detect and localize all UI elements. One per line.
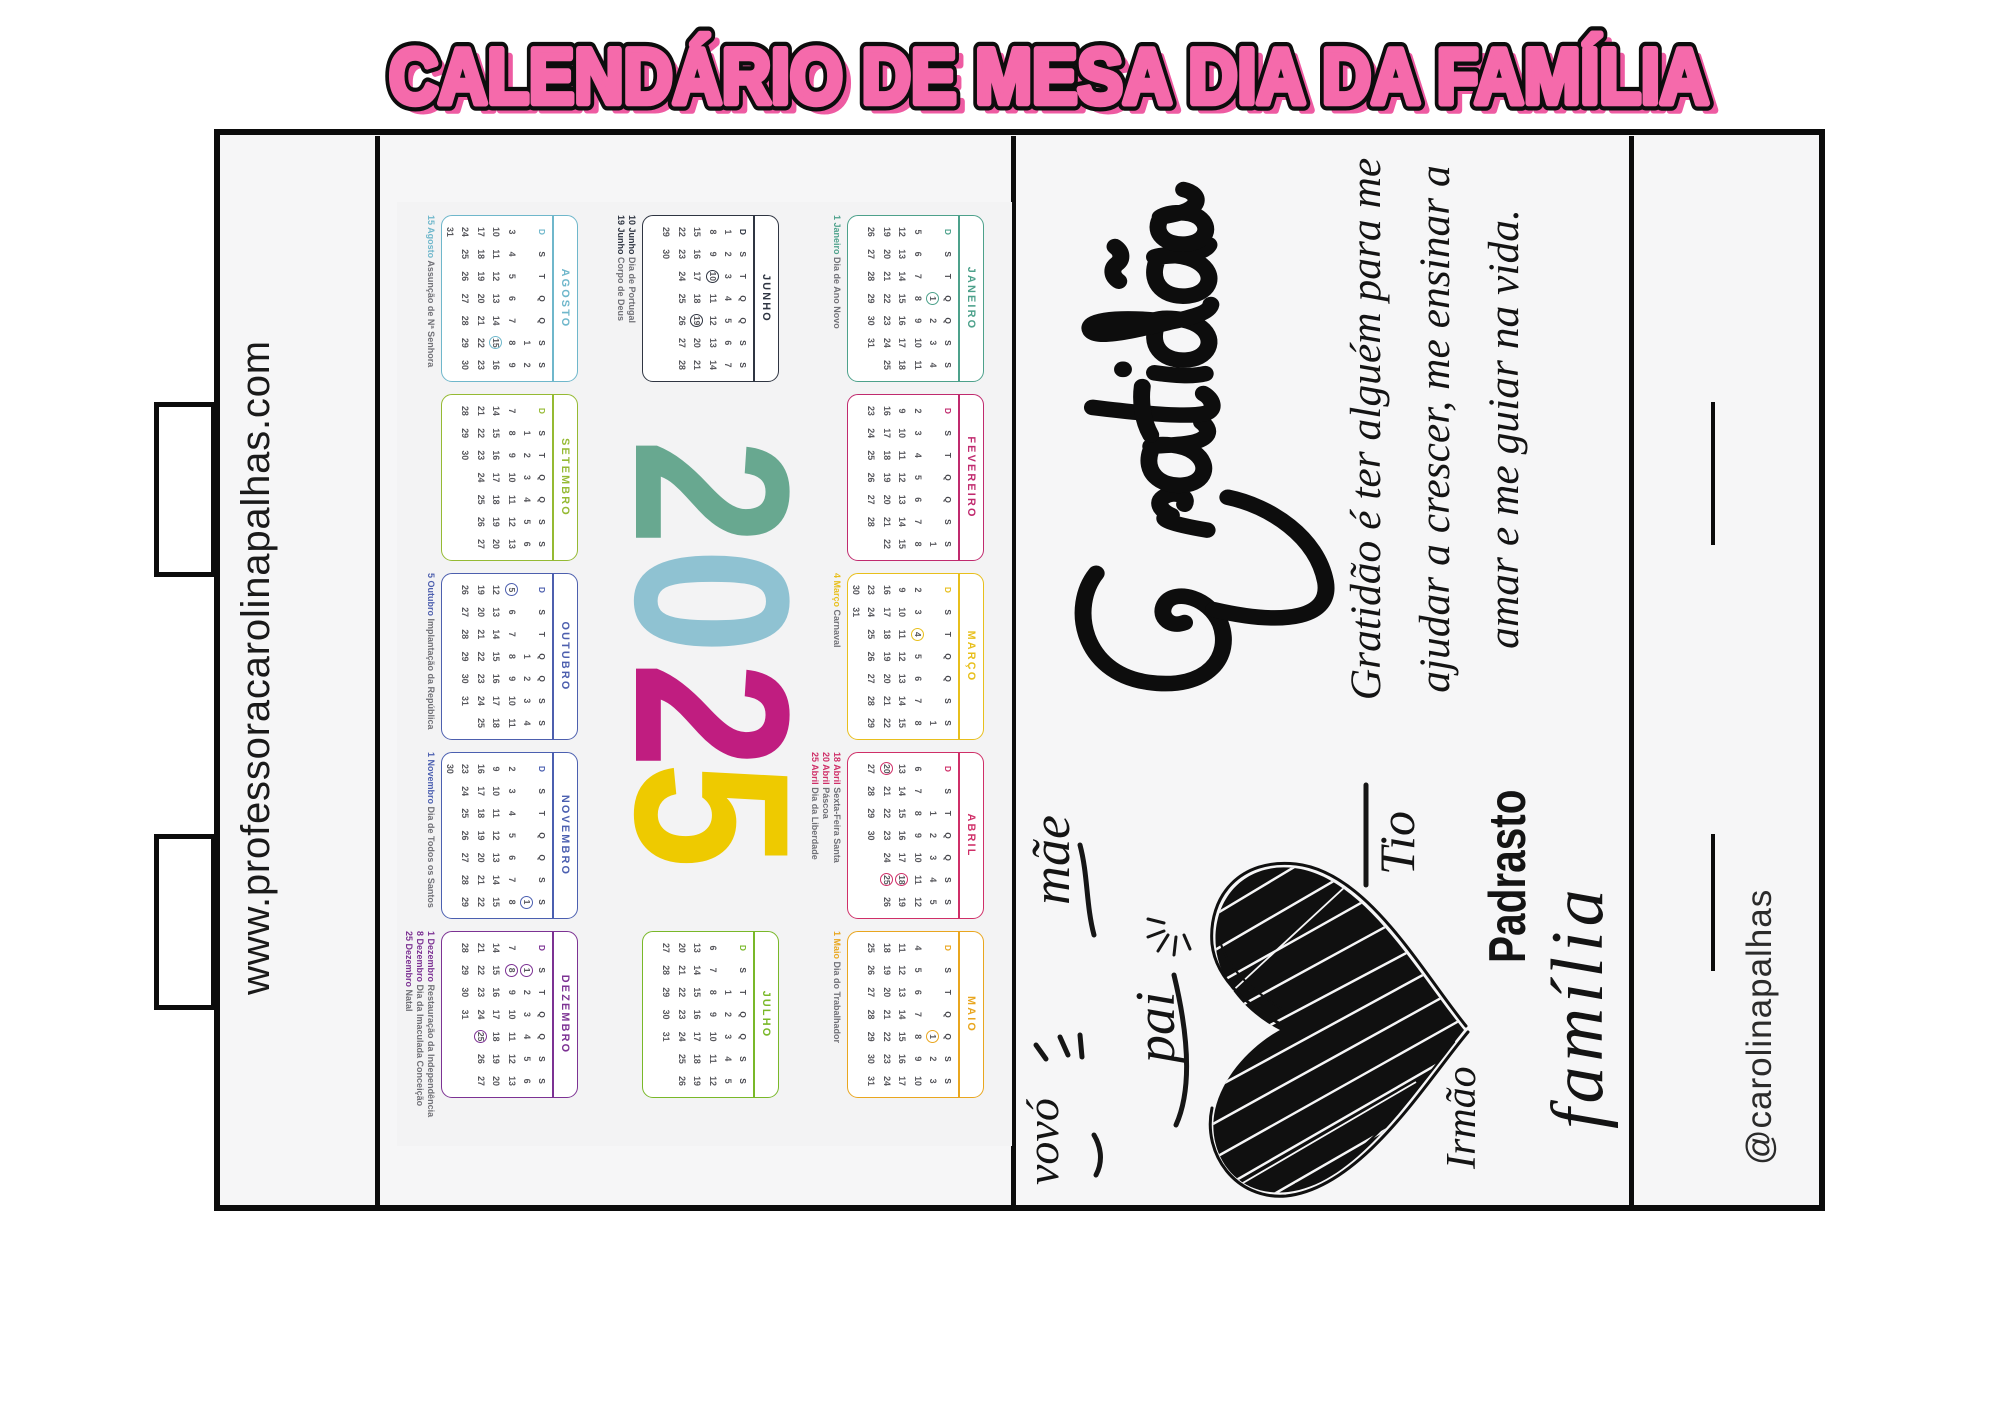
svg-text:CALENDÁRIO DE MESA DIA DA FAMÍ: CALENDÁRIO DE MESA DIA DA FAMÍLIA [389,32,1709,120]
